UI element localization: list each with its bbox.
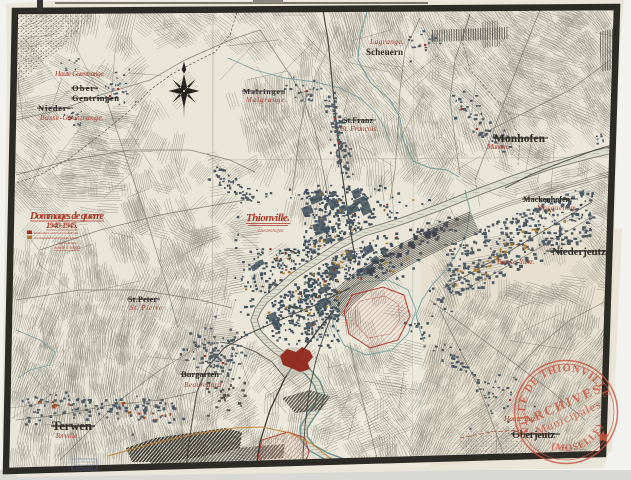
svg-text:Macquenom.: Macquenom. (536, 204, 578, 212)
svg-text:Malringen: Malringen (243, 87, 286, 96)
svg-text:Scheuern: Scheuern (366, 47, 403, 57)
svg-text:1940-1945.: 1940-1945. (46, 220, 78, 230)
svg-text:St. Pierre: St. Pierre (130, 304, 162, 312)
svg-text:St. François.: St. François. (341, 124, 378, 133)
svg-text:échelle 1:10000: échelle 1:10000 (54, 245, 80, 250)
svg-text:Basse-Guentrange.: Basse-Guentrange. (40, 113, 104, 122)
svg-text:Lagrange.: Lagrange. (369, 37, 404, 46)
svg-text:Basse Yutz.: Basse Yutz. (497, 257, 535, 266)
svg-text:Diedenhofen: Diedenhofen (257, 229, 284, 234)
svg-text:considérablement endommagés: considérablement endommagés (34, 236, 79, 240)
svg-text:Immeubles entièrement détruits: Immeubles entièrement détruits (33, 231, 79, 235)
svg-text:Mackenhofen: Mackenhofen (523, 195, 571, 204)
svg-text:Niederjeutz: Niederjeutz (552, 246, 606, 258)
svg-text:Thionville.: Thionville. (246, 212, 290, 224)
svg-text:Beauregard: Beauregard (184, 380, 221, 389)
svg-text:Haute Guentrange.: Haute Guentrange. (54, 69, 105, 78)
svg-text:Malgrange.: Malgrange. (245, 96, 287, 104)
svg-text:Terville.: Terville. (55, 431, 79, 440)
svg-text:Manom.: Manom. (486, 142, 509, 151)
